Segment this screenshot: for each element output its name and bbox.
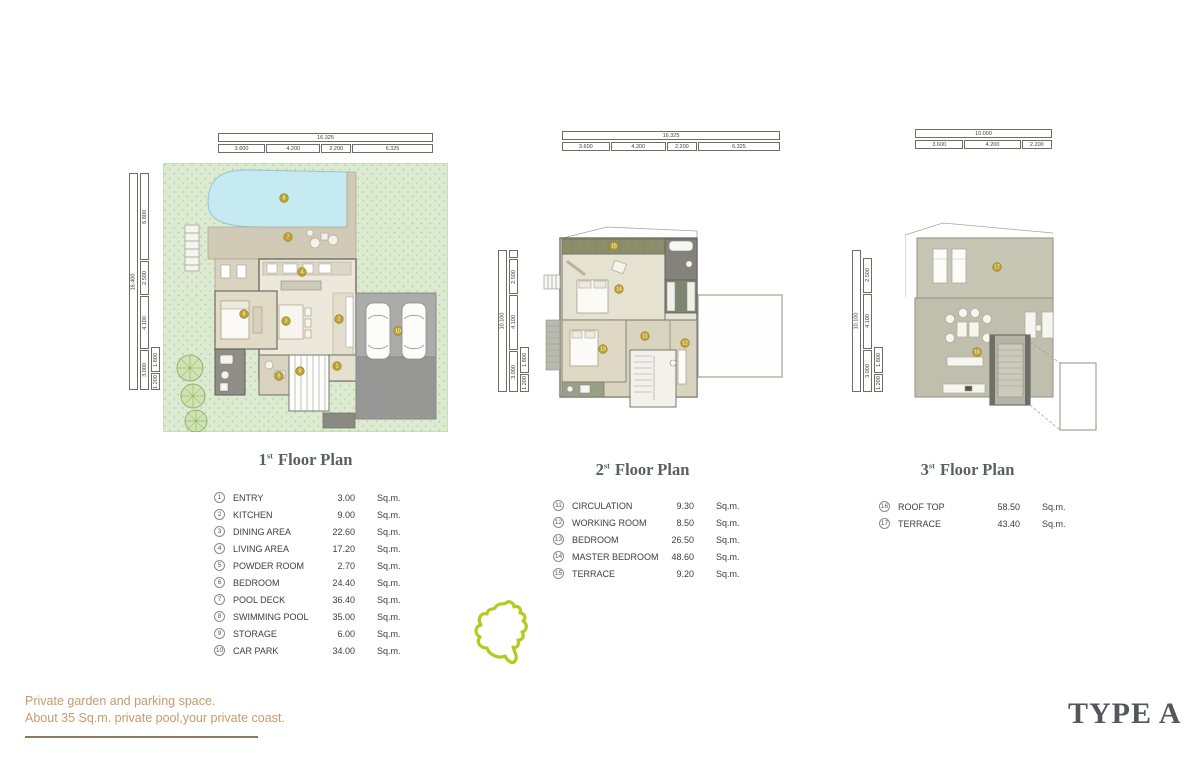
dim-left-plan2: 10.100 2.500 4.100 3.000 1.800 1.200	[498, 250, 529, 392]
legend-room-name: ENTRY	[233, 493, 321, 503]
legend-unit: Sq.m.	[377, 612, 401, 622]
legend-room-name: POWDER ROOM	[233, 561, 321, 571]
dim-segment: 2.200	[667, 142, 697, 151]
legend-unit: Sq.m.	[377, 595, 401, 605]
legend-room-name: WORKING ROOM	[572, 518, 660, 528]
legend-room-name: STORAGE	[233, 629, 321, 639]
room-marker: 8	[280, 194, 289, 203]
dim-segment: 6.325	[698, 142, 780, 151]
legend-room-area: 26.50	[660, 535, 694, 545]
bathroom-2	[562, 382, 604, 397]
dim-segment: 2.200	[321, 144, 350, 153]
legend-number-badge: 7	[214, 594, 225, 605]
tagline: Private garden and parking space. About …	[25, 693, 285, 727]
site-outline-icon	[471, 598, 535, 672]
svg-text:7: 7	[287, 235, 290, 241]
room-marker: 11	[641, 332, 650, 341]
room-marker: 2	[335, 315, 344, 324]
floor-plan-3-drawing: 17 16	[905, 222, 1100, 437]
legend-row: 6BEDROOM24.40Sq.m.	[214, 574, 401, 591]
svg-text:9: 9	[299, 369, 302, 375]
svg-text:16: 16	[974, 350, 980, 356]
svg-text:13: 13	[600, 347, 606, 353]
legend-row: 8SWIMMING POOL35.00Sq.m.	[214, 608, 401, 625]
legend-row: 13BEDROOM26.50Sq.m.	[553, 531, 740, 548]
legend-room-area: 9.20	[660, 569, 694, 579]
legend-number-badge: 15	[553, 568, 564, 579]
bathroom	[215, 349, 245, 395]
tagline-underline	[25, 736, 258, 738]
legend-floor-1: 1ENTRY3.00Sq.m. 2KITCHEN9.00Sq.m. 3DININ…	[214, 489, 401, 659]
dim-left-plan3: 10.100 2.500 4.100 3.000 1.800 1.200	[852, 250, 883, 392]
floor-2-title: 2stFloor Plan	[540, 460, 745, 480]
legend-room-name: MASTER BEDROOM	[572, 552, 660, 562]
legend-number-badge: 11	[553, 500, 564, 511]
porch	[215, 259, 259, 291]
legend-room-area: 48.60	[660, 552, 694, 562]
legend-room-area: 2.70	[321, 561, 355, 571]
dim-segment: 4.200	[964, 140, 1020, 149]
roof-top	[915, 298, 1053, 397]
legend-room-area: 36.40	[321, 595, 355, 605]
powder-room	[259, 355, 289, 395]
legend-unit: Sq.m.	[1042, 519, 1066, 529]
legend-number-badge: 3	[214, 526, 225, 537]
legend-unit: Sq.m.	[377, 544, 401, 554]
legend-row: 16ROOF TOP58.50Sq.m.	[879, 498, 1066, 515]
room-marker: 3	[282, 317, 291, 326]
legend-room-name: BEDROOM	[572, 535, 660, 545]
dim-segment: 1.200	[874, 374, 883, 392]
legend-room-name: DINING AREA	[233, 527, 321, 537]
legend-number-badge: 8	[214, 611, 225, 622]
car-icon	[402, 303, 426, 359]
svg-text:1: 1	[336, 364, 339, 370]
legend-unit: Sq.m.	[377, 578, 401, 588]
dim-top-plan1: 16.325 3.600 4.200 2.200 6.325	[218, 133, 433, 155]
room-marker: 10	[394, 327, 403, 336]
dim-segment: 1.800	[151, 347, 160, 372]
dim-segment: 3.600	[562, 142, 610, 151]
svg-text:12: 12	[682, 341, 688, 347]
dim-segment: 2.500	[863, 258, 872, 293]
floor-3-title: 3stFloor Plan	[865, 460, 1070, 480]
dim-segment: 2.200	[1022, 140, 1052, 149]
legend-row: 11CIRCULATION9.30Sq.m.	[553, 497, 740, 514]
legend-unit: Sq.m.	[377, 561, 401, 571]
legend-row: 7POOL DECK36.40Sq.m.	[214, 591, 401, 608]
tagline-line2: About 35 Sq.m. private pool,your private…	[25, 710, 285, 727]
legend-room-area: 35.00	[321, 612, 355, 622]
side-terrace-strip	[546, 320, 560, 370]
dim-segment: 1.800	[874, 347, 883, 373]
room-marker: 1	[333, 362, 342, 371]
legend-row: 2KITCHEN9.00Sq.m.	[214, 506, 401, 523]
legend-unit: Sq.m.	[377, 629, 401, 639]
legend-row: 4LIVING AREA17.20Sq.m.	[214, 540, 401, 557]
dim-left-plan1: 16.400 6.800 2.500 4.100 3.000 1.800 1.2…	[129, 173, 160, 390]
dim-segment: 4.100	[140, 296, 149, 350]
svg-text:4: 4	[301, 270, 304, 276]
dim-segment: 4.100	[863, 294, 872, 350]
car-park	[356, 293, 436, 419]
svg-text:3: 3	[285, 319, 288, 325]
bedroom-2	[562, 320, 626, 382]
car-icon	[366, 303, 390, 359]
legend-number-badge: 13	[553, 534, 564, 545]
dim-total: 16.325	[218, 133, 433, 142]
dim-top-plan2: 16.325 3.600 4.200 2.200 6.325	[562, 131, 780, 153]
roof-outline	[559, 227, 697, 239]
dim-total: 16.325	[562, 131, 780, 140]
legend-number-badge: 2	[214, 509, 225, 520]
svg-text:17: 17	[994, 265, 1000, 271]
legend-row: 14MASTER BEDROOM48.60Sq.m.	[553, 548, 740, 565]
legend-room-area: 9.00	[321, 510, 355, 520]
legend-unit: Sq.m.	[716, 535, 740, 545]
bathroom	[665, 239, 697, 280]
legend-unit: Sq.m.	[1042, 502, 1066, 512]
doormat	[323, 413, 355, 428]
legend-number-badge: 9	[214, 628, 225, 639]
floor-plan-2-drawing: 15 14 13 11 12	[540, 222, 785, 420]
floor-plan-1-drawing: 8 7 4 6 3 2 10 1 9 5	[163, 163, 448, 432]
legend-room-area: 43.40	[986, 519, 1020, 529]
legend-room-area: 8.50	[660, 518, 694, 528]
floor-1-title: 1stFloor Plan	[163, 450, 448, 470]
dim-segment: 6.325	[352, 144, 433, 153]
legend-row: 10CAR PARK34.00Sq.m.	[214, 642, 401, 659]
legend-room-name: CAR PARK	[233, 646, 321, 656]
type-label: TYPE A	[1068, 697, 1182, 731]
dim-label: 16.325	[317, 135, 334, 141]
dim-total: 16.400	[129, 173, 138, 390]
legend-room-name: BEDROOM	[233, 578, 321, 588]
dim-segment: 2.500	[140, 261, 149, 294]
dim-total: 10.000	[915, 129, 1052, 138]
legend-unit: Sq.m.	[377, 493, 401, 503]
dim-segment: 2.500	[509, 259, 518, 293]
room-marker: 14	[615, 285, 624, 294]
legend-row: 17TERRACE43.40Sq.m.	[879, 515, 1066, 532]
legend-room-area: 6.00	[321, 629, 355, 639]
svg-text:6: 6	[243, 312, 246, 318]
dim-segment: 4.100	[509, 295, 518, 350]
dim-segment: 4.200	[611, 142, 666, 151]
legend-floor-2: 11CIRCULATION9.30Sq.m. 12WORKING ROOM8.5…	[553, 497, 740, 582]
side-steps	[185, 225, 199, 271]
dim-segment	[509, 250, 518, 258]
room-marker: 6	[240, 310, 249, 319]
legend-row: 15TERRACE9.20Sq.m.	[553, 565, 740, 582]
legend-row: 9STORAGE6.00Sq.m.	[214, 625, 401, 642]
dim-segment: 3.000	[509, 351, 518, 392]
legend-number-badge: 4	[214, 543, 225, 554]
legend-row: 3DINING AREA22.60Sq.m.	[214, 523, 401, 540]
legend-number-badge: 1	[214, 492, 225, 503]
upper-terrace	[917, 238, 1053, 298]
legend-row: 5POWDER ROOM2.70Sq.m.	[214, 557, 401, 574]
legend-number-badge: 10	[214, 645, 225, 656]
svg-text:11: 11	[642, 334, 647, 340]
legend-number-badge: 12	[553, 517, 564, 528]
legend-number-badge: 6	[214, 577, 225, 588]
legend-unit: Sq.m.	[377, 527, 401, 537]
legend-room-area: 58.50	[986, 502, 1020, 512]
balcony-ledge	[544, 275, 560, 289]
staircase	[289, 355, 329, 411]
room-marker: 5	[275, 372, 284, 381]
legend-room-name: ROOF TOP	[898, 502, 986, 512]
legend-number-badge: 14	[553, 551, 564, 562]
legend-room-name: KITCHEN	[233, 510, 321, 520]
lower-roof-outline	[698, 295, 782, 377]
legend-unit: Sq.m.	[716, 569, 740, 579]
dim-segment: 1.200	[520, 374, 529, 392]
legend-room-area: 9.30	[660, 501, 694, 511]
svg-text:5: 5	[278, 374, 281, 380]
dim-segment: 3.000	[140, 350, 149, 390]
legend-floor-3: 16ROOF TOP58.50Sq.m. 17TERRACE43.40Sq.m.	[879, 498, 1066, 532]
dim-segment: 1.800	[520, 347, 529, 373]
legend-number-badge: 17	[879, 518, 890, 529]
stair-shaft	[990, 335, 1030, 405]
legend-number-badge: 16	[879, 501, 890, 512]
legend-unit: Sq.m.	[716, 501, 740, 511]
legend-row: 1ENTRY3.00Sq.m.	[214, 489, 401, 506]
legend-room-area: 17.20	[321, 544, 355, 554]
legend-room-name: TERRACE	[898, 519, 986, 529]
room-marker: 4	[298, 268, 307, 277]
dim-segment: 3.600	[915, 140, 963, 149]
elevator-pad-outline	[1060, 363, 1096, 430]
dim-total: 10.100	[852, 250, 861, 392]
tagline-line1: Private garden and parking space.	[25, 693, 285, 710]
legend-number-badge: 5	[214, 560, 225, 571]
legend-unit: Sq.m.	[377, 646, 401, 656]
swimming-pool	[208, 170, 347, 227]
room-marker: 13	[599, 345, 608, 354]
legend-room-name: CIRCULATION	[572, 501, 660, 511]
floor-plan-sheet: 16.325 3.600 4.200 2.200 6.325 16.400 6.…	[0, 0, 1197, 758]
master-bedroom	[562, 254, 665, 320]
dim-top-plan3: 10.000 3.600 4.200 2.200	[915, 129, 1052, 151]
dim-segment: 4.200	[266, 144, 320, 153]
dim-gap	[863, 250, 872, 257]
room-marker: 12	[681, 339, 690, 348]
legend-row: 12WORKING ROOM8.50Sq.m.	[553, 514, 740, 531]
dim-total: 10.100	[498, 250, 507, 392]
room-marker: 15	[610, 242, 619, 251]
dim-segment: 1.200	[151, 373, 160, 390]
legend-room-area: 24.40	[321, 578, 355, 588]
legend-room-name: POOL DECK	[233, 595, 321, 605]
legend-room-name: SWIMMING POOL	[233, 612, 321, 622]
legend-unit: Sq.m.	[716, 518, 740, 528]
svg-text:2: 2	[338, 317, 341, 323]
bedroom	[215, 291, 277, 349]
svg-text:14: 14	[616, 287, 622, 293]
legend-room-name: TERRACE	[572, 569, 660, 579]
legend-room-area: 3.00	[321, 493, 355, 503]
staircase	[630, 350, 676, 407]
walk-in-closet	[665, 280, 697, 313]
dim-segment: 3.000	[863, 350, 872, 392]
svg-text:10: 10	[395, 329, 401, 335]
dim-segment: 6.800	[140, 173, 149, 260]
room-marker: 16	[973, 348, 982, 357]
room-marker: 17	[993, 263, 1002, 272]
legend-room-area: 34.00	[321, 646, 355, 656]
svg-text:15: 15	[611, 244, 617, 250]
room-marker: 7	[284, 233, 293, 242]
legend-unit: Sq.m.	[716, 552, 740, 562]
room-marker: 9	[296, 367, 305, 376]
legend-unit: Sq.m.	[377, 510, 401, 520]
dim-segment: 3.600	[218, 144, 265, 153]
legend-room-name: LIVING AREA	[233, 544, 321, 554]
svg-text:8: 8	[283, 196, 286, 202]
legend-room-area: 22.60	[321, 527, 355, 537]
